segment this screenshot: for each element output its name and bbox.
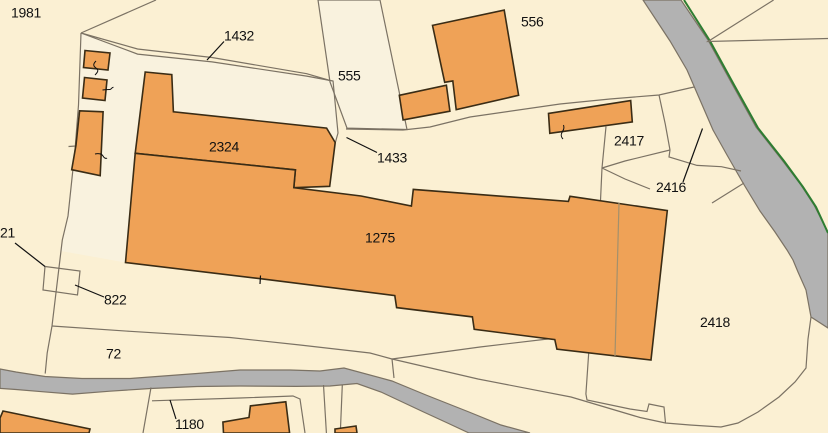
svg-text:822: 822 — [104, 292, 127, 308]
svg-text:1180: 1180 — [175, 416, 204, 432]
svg-text:72: 72 — [106, 346, 121, 362]
svg-text:1981: 1981 — [11, 5, 41, 21]
svg-text:1275: 1275 — [365, 230, 395, 246]
svg-text:1432: 1432 — [224, 28, 254, 44]
svg-text:555: 555 — [338, 68, 361, 84]
svg-text:2416: 2416 — [656, 179, 686, 195]
svg-text:2324: 2324 — [209, 139, 239, 155]
svg-text:1433: 1433 — [377, 150, 407, 166]
svg-text:21: 21 — [0, 225, 15, 241]
svg-text:556: 556 — [521, 14, 544, 30]
svg-text:2417: 2417 — [614, 133, 644, 149]
svg-text:2418: 2418 — [700, 314, 730, 330]
